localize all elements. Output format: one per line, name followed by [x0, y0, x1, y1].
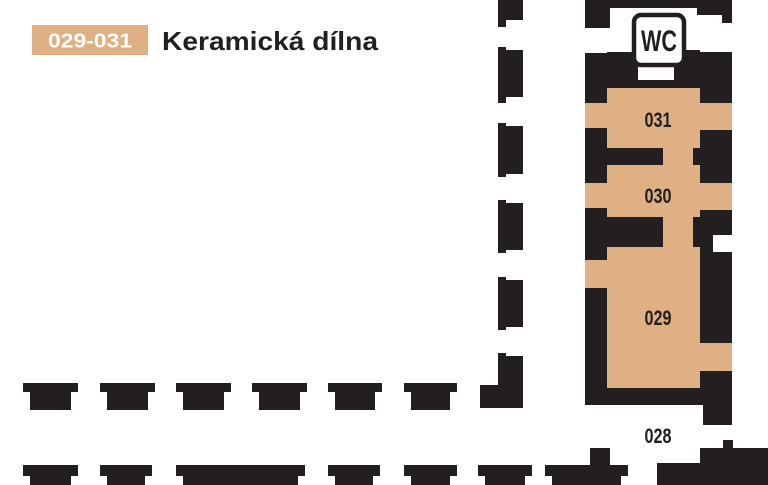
wall-segment: [411, 476, 450, 485]
wall-segment: [411, 392, 450, 410]
wall-segment: [506, 203, 523, 250]
wc-sign: WC: [634, 15, 684, 65]
room-031-door: [585, 103, 610, 128]
legend: 029-031 Keramická dílna: [48, 26, 379, 56]
wall-segment: [252, 383, 307, 392]
wall-segment: [328, 383, 382, 392]
wall-jamb: [722, 15, 732, 23]
wall-segment: [498, 0, 506, 27]
corridor-horizontal: [0, 410, 585, 465]
wall-segment: [183, 392, 224, 410]
wall-031-030: [610, 148, 663, 165]
wall-029-028: [610, 388, 732, 405]
wall-segment: [506, 50, 523, 97]
wall-segment: [506, 126, 523, 174]
wall-corner-ne: [697, 0, 732, 15]
wall-segment: [545, 465, 628, 476]
wall-segment: [23, 465, 78, 476]
wall-jamb: [723, 440, 733, 448]
room-031-bay: [697, 103, 732, 130]
wall-segment: [176, 383, 231, 392]
room-030-door: [585, 183, 610, 208]
wall-segment: [585, 208, 610, 260]
room-028-label: 028: [645, 425, 672, 448]
wall-segment: [404, 465, 457, 476]
room-029-bay: [697, 343, 732, 371]
wall-top: [610, 0, 700, 8]
wall-segment: [404, 383, 457, 392]
wall-segment: [585, 0, 610, 28]
wall-segment: [498, 200, 506, 253]
wall-segment: [498, 277, 506, 330]
floor-plan-page: WC 031 030 029 028 029-031 Keramická díl…: [0, 0, 768, 485]
wall-segment: [30, 476, 71, 485]
wall-outer-east: [697, 52, 732, 103]
wall-030-029: [610, 217, 663, 247]
wall-030-029: [693, 217, 703, 247]
page-title: Keramická dílna: [162, 26, 379, 56]
corridor-vertical: [523, 0, 585, 410]
wall-segment: [100, 383, 155, 392]
wall-segment: [585, 128, 610, 183]
wall-segment: [335, 476, 373, 485]
wall-segment: [107, 392, 148, 410]
wall-segment: [498, 47, 506, 103]
wall-segment: [506, 0, 523, 20]
room-029-label: 029: [645, 307, 672, 330]
wall-segment: [183, 476, 298, 485]
floor-plan-svg: WC 031 030 029 028 029-031 Keramická díl…: [0, 0, 768, 485]
wall-outer-east: [697, 371, 732, 388]
wall-segment: [259, 392, 300, 410]
wall-031-030: [693, 148, 703, 165]
room-030-bay: [697, 183, 732, 210]
wall-segment: [498, 123, 506, 177]
wall-outer-east: [697, 252, 732, 343]
wall-outer-east: [703, 405, 732, 425]
room-030-label: 030: [645, 185, 672, 208]
room-029-door: [585, 260, 610, 288]
wall-segment: [30, 392, 71, 410]
wall-segment: [700, 448, 768, 463]
legend-range-label: 029-031: [48, 31, 132, 53]
wc-sign-label: WC: [641, 25, 677, 58]
wall-segment: [590, 448, 610, 467]
room-031-label: 031: [645, 109, 672, 132]
wall-corner-foot: [480, 385, 523, 408]
wall-segment: [552, 476, 621, 485]
wall-segment: [100, 465, 152, 476]
wall-segment: [657, 463, 768, 485]
wall-segment: [585, 288, 610, 405]
wall-segment: [485, 476, 525, 485]
wall-segment: [176, 465, 305, 476]
door-030-029: [663, 217, 693, 247]
wall-segment: [585, 53, 610, 103]
wall-segment: [23, 383, 78, 392]
wall-segment: [328, 465, 380, 476]
door-031-030: [663, 148, 693, 165]
wall-segment: [506, 280, 523, 327]
wall-segment: [335, 392, 375, 410]
wall-segment: [107, 476, 145, 485]
wall-segment: [478, 465, 532, 476]
